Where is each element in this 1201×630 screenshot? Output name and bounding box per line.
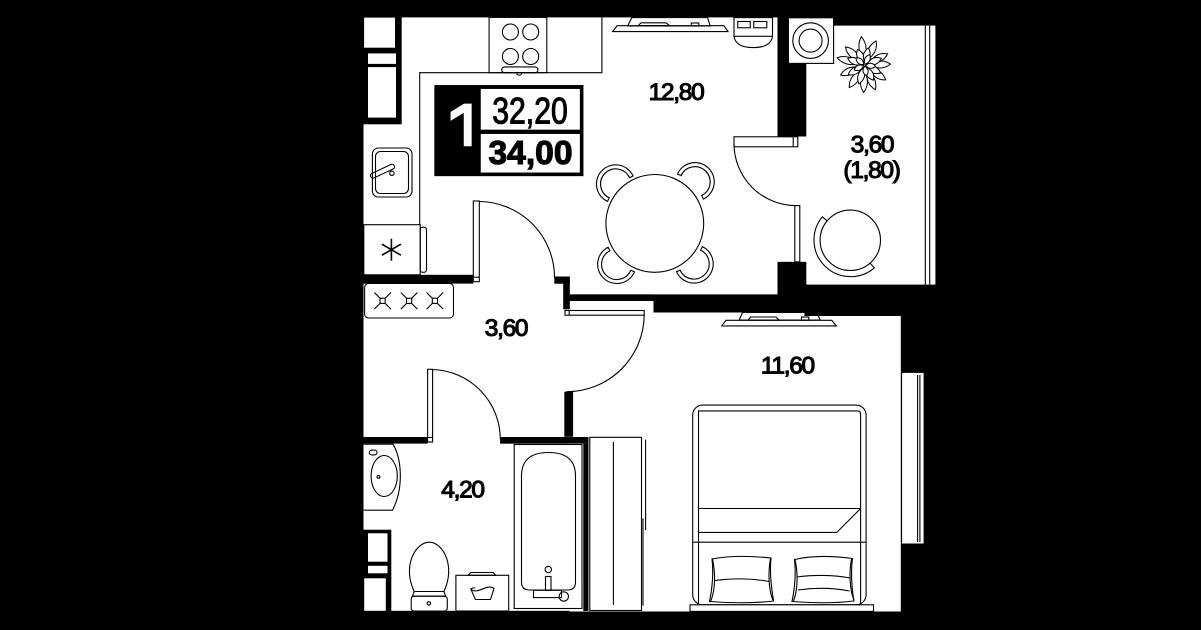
svg-text:4,20: 4,20 [441, 476, 484, 503]
svg-text:3,60: 3,60 [485, 315, 528, 342]
svg-text:11,60: 11,60 [761, 353, 815, 380]
svg-text:(1,80): (1,80) [843, 157, 899, 184]
svg-text:3,60: 3,60 [851, 131, 894, 158]
svg-text:12,80: 12,80 [649, 79, 704, 106]
svg-text:34,00: 34,00 [489, 134, 573, 171]
svg-text:32,20: 32,20 [492, 91, 568, 132]
